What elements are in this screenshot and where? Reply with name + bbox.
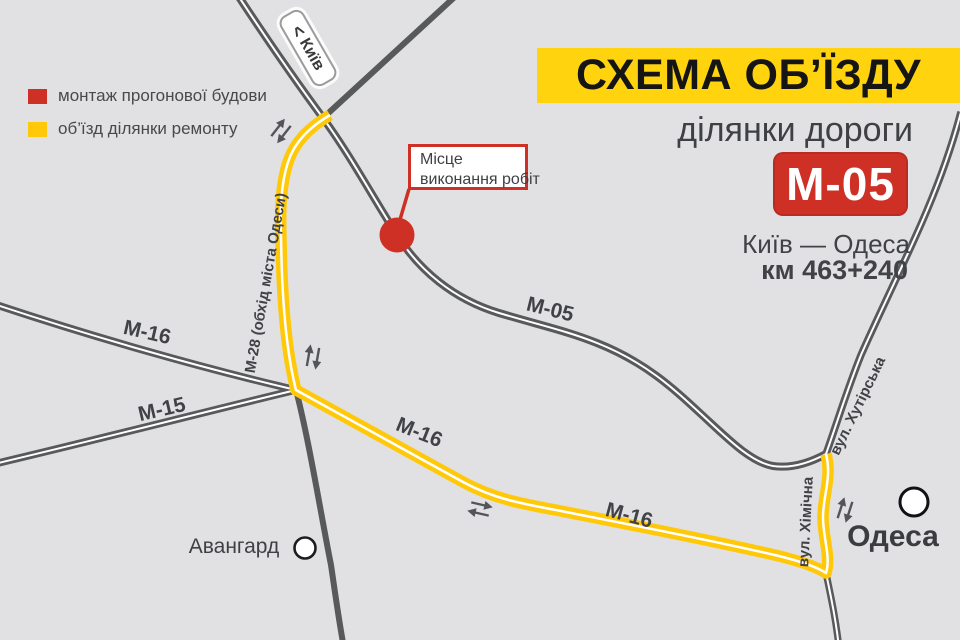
legend: монтаж прогонової будови об’їзд ділянки …: [28, 86, 267, 152]
callout-line: виконання робіт: [420, 170, 525, 190]
legend-label: монтаж прогонової будови: [58, 86, 267, 106]
city-label-avangard: Авангард: [189, 535, 280, 559]
city-label-odesa: Одеса: [847, 520, 939, 554]
detour-scheme-map: СХЕМА ОБ’ЇЗДУ ділянки дороги М-05 Київ —…: [0, 0, 960, 640]
title-banner: СХЕМА ОБ’ЇЗДУ: [537, 48, 960, 103]
page-subtitle: ділянки дороги: [677, 111, 913, 150]
centerline-khimichna-south: [826, 573, 839, 640]
road-spur-north: [323, 0, 459, 118]
two-way-arrows-icon: [267, 116, 296, 146]
two-way-arrows-icon: [302, 344, 324, 371]
callout-line: Місце: [420, 150, 525, 170]
work-site-callout: Місце виконання робіт: [408, 144, 528, 190]
avangard-city-dot: [295, 538, 316, 559]
road-avangard: [296, 390, 344, 640]
odesa-city-dot: [900, 488, 928, 516]
road-number: М-05: [786, 157, 895, 211]
two-way-arrows-icon: [466, 498, 493, 521]
yellow-swatch-icon: [28, 122, 47, 137]
road-number-badge: М-05: [773, 152, 908, 216]
work-site-marker: [380, 218, 415, 253]
red-swatch-icon: [28, 89, 47, 104]
kilometer-mark: км 463+240: [761, 255, 908, 286]
legend-item-detour: об’їзд ділянки ремонту: [28, 119, 267, 139]
legend-item-work: монтаж прогонової будови: [28, 86, 267, 106]
legend-label: об’їзд ділянки ремонту: [58, 119, 238, 139]
page-title: СХЕМА ОБ’ЇЗДУ: [576, 51, 921, 100]
